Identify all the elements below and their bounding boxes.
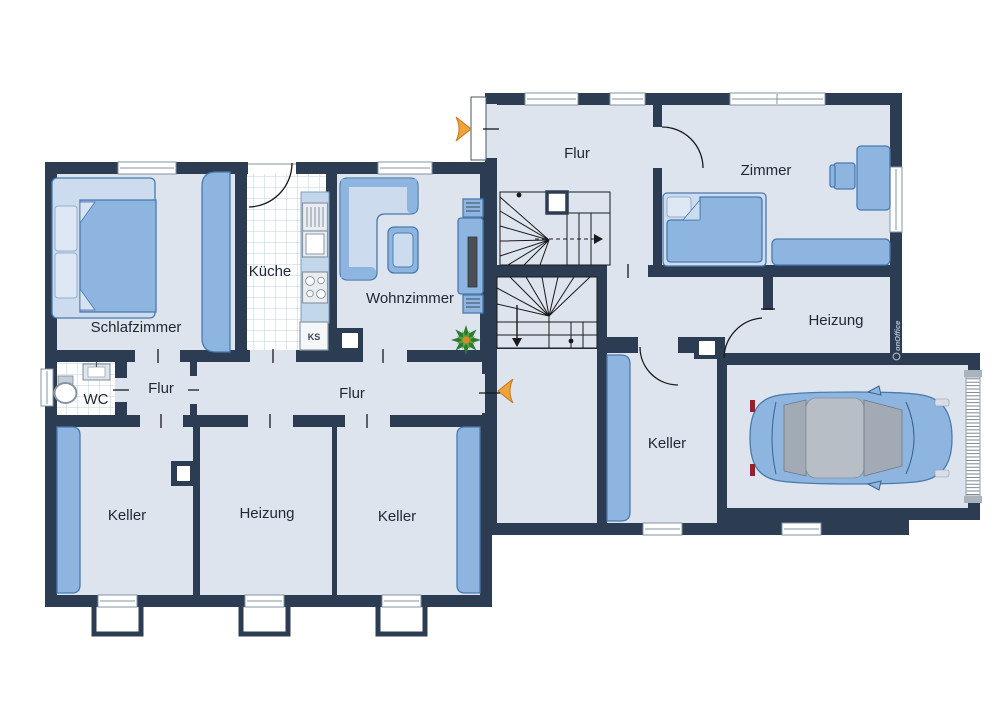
keller-door-opening (638, 337, 678, 353)
room-label-flur-gross: Flur (339, 385, 365, 402)
shaft-niche (694, 337, 720, 359)
watermark-text: onOffice (893, 321, 902, 351)
wardrobe (202, 172, 230, 352)
car (750, 386, 952, 490)
fridge: KS (300, 322, 328, 350)
shaft-niche (171, 461, 200, 486)
window (118, 162, 176, 174)
window (730, 93, 825, 105)
window (245, 595, 284, 607)
single-bed (663, 193, 766, 266)
drainer (303, 203, 328, 231)
coffee-table (388, 227, 418, 273)
room-label-keller-west: Keller (108, 507, 146, 524)
headlight (935, 470, 949, 477)
storage-shelf (57, 427, 80, 593)
light-well (241, 607, 288, 634)
taillight (750, 464, 755, 476)
sink (303, 231, 328, 257)
toilet (55, 376, 77, 403)
ground-floor-section: onOffice (456, 93, 982, 535)
kitchen-counter: KS (300, 192, 329, 350)
floorplan-canvas: KS (0, 0, 1000, 707)
desk (857, 146, 890, 210)
room-label-keller-og: Keller (648, 435, 686, 452)
entrance-arrow (456, 117, 471, 141)
window (378, 162, 432, 174)
room-label-flur-klein: Flur (148, 380, 174, 397)
window (890, 167, 902, 232)
heizung-door-opening (763, 310, 773, 353)
room-label-flur-og: Flur (564, 145, 590, 162)
shaft-niche (330, 328, 363, 362)
chair (830, 163, 855, 189)
room-label-wohnzimmer: Wohnzimmer (366, 290, 454, 307)
room-label-wc: WC (84, 391, 109, 408)
stove (303, 272, 328, 303)
washbasin (83, 362, 110, 380)
corridor-floor (607, 277, 763, 337)
room-label-schlafzimmer: Schlafzimmer (91, 319, 182, 336)
window (98, 595, 137, 607)
window (382, 595, 421, 607)
window (610, 93, 645, 105)
window (782, 523, 821, 535)
room-label-heizung-keller: Heizung (239, 505, 294, 522)
room-label-zimmer: Zimmer (741, 162, 792, 179)
taillight (750, 400, 755, 412)
floorplan-image: KS (0, 0, 1000, 707)
vestibule-floor (497, 349, 597, 523)
light-well (378, 607, 425, 634)
fridge-label: KS (308, 332, 321, 342)
plant (451, 325, 481, 355)
zimmer-door-opening (653, 127, 662, 168)
corridor-pocket (725, 337, 763, 353)
light-well (94, 607, 141, 634)
headlight (935, 399, 949, 406)
room-label-kueche: Küche (249, 263, 292, 280)
storage-shelf (457, 427, 480, 593)
garage-door (964, 370, 982, 503)
tv-screen (468, 237, 477, 287)
room-label-heizung-og: Heizung (808, 312, 863, 329)
storage-shelf (607, 355, 630, 521)
window (41, 369, 53, 406)
window (525, 93, 578, 105)
window (643, 523, 682, 535)
room-label-keller-ost: Keller (378, 508, 416, 525)
basement-section: KS (41, 162, 499, 634)
entrance-door-opening (485, 104, 497, 158)
sideboard (772, 239, 890, 265)
double-bed (52, 178, 156, 318)
